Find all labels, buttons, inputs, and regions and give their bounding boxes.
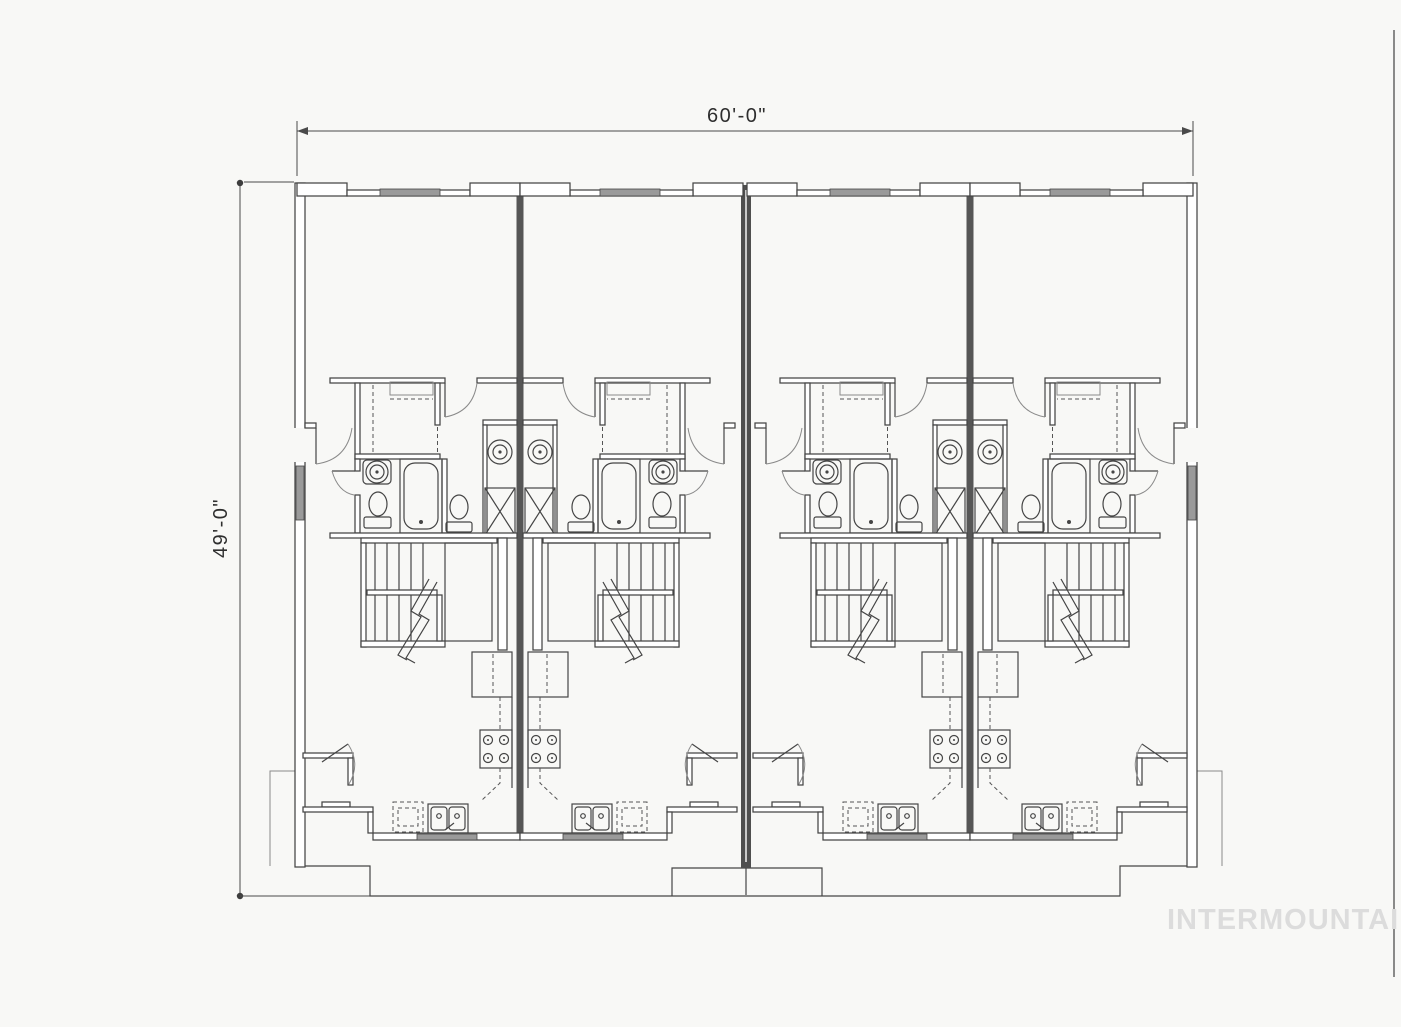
- party-wall-units-1-2: [517, 196, 524, 836]
- height-dimension-label: 49'-0": [210, 498, 232, 558]
- side-door-opening-right: [1186, 428, 1199, 462]
- side-door-opening-left: [294, 428, 307, 462]
- side-pad-left: [270, 771, 297, 866]
- exterior-wall-right: [1187, 183, 1197, 867]
- scanned-floor-plan-page: 60'-0" 49'-0" INTERMOUNTAIN: [0, 0, 1401, 1027]
- width-dimension-label: 60'-0": [707, 105, 767, 127]
- center-stoop: [672, 868, 822, 896]
- arrowhead-left-icon: [297, 127, 308, 135]
- porch-slab-edge: [297, 866, 1193, 896]
- floor-plan-canvas: 60'-0" 49'-0" INTERMOUNTAIN: [0, 0, 1401, 1027]
- unit-3: [747, 183, 970, 840]
- building-shell: [294, 183, 1199, 868]
- dimension-left: 49'-0": [210, 180, 370, 899]
- exterior-wall-left: [295, 183, 305, 867]
- unit-4: [970, 183, 1193, 840]
- side-window-left: [296, 466, 304, 520]
- watermark: INTERMOUNTAIN: [1167, 904, 1401, 936]
- dimension-dot-icon: [237, 180, 243, 186]
- unit-1: [297, 183, 520, 840]
- unit-2: [520, 183, 743, 840]
- party-wall-units-3-4: [967, 196, 974, 836]
- side-window-right: [1188, 466, 1196, 520]
- arrowhead-right-icon: [1182, 127, 1193, 135]
- dimension-top: 60'-0": [297, 105, 1193, 176]
